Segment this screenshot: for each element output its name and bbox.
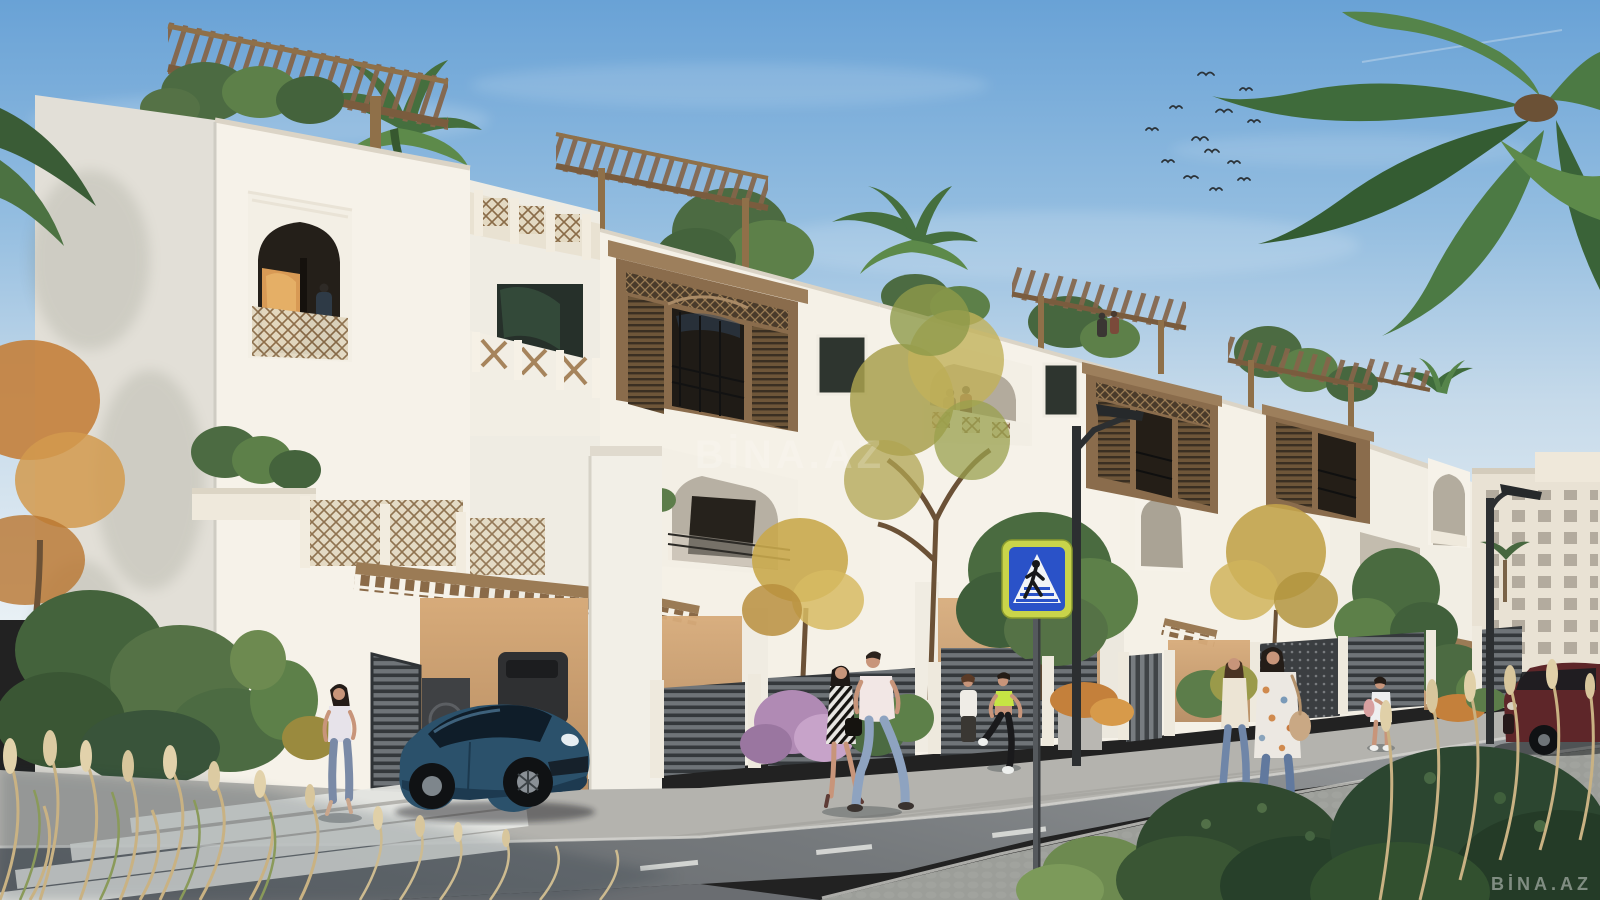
polo-shirt [859,676,895,722]
black-handbag [845,718,862,736]
arched-window-a [248,192,352,362]
architectural-rendering: BİNA.AZ BİNA.AZ [0,0,1600,900]
pink-bag [1364,699,1375,717]
watermark-corner: BİNA.AZ [1491,874,1592,894]
watermark-center: BİNA.AZ [695,433,885,477]
window-c [1044,364,1078,416]
scene: BİNA.AZ BİNA.AZ [0,0,1600,900]
lime-sports-top [994,691,1014,706]
